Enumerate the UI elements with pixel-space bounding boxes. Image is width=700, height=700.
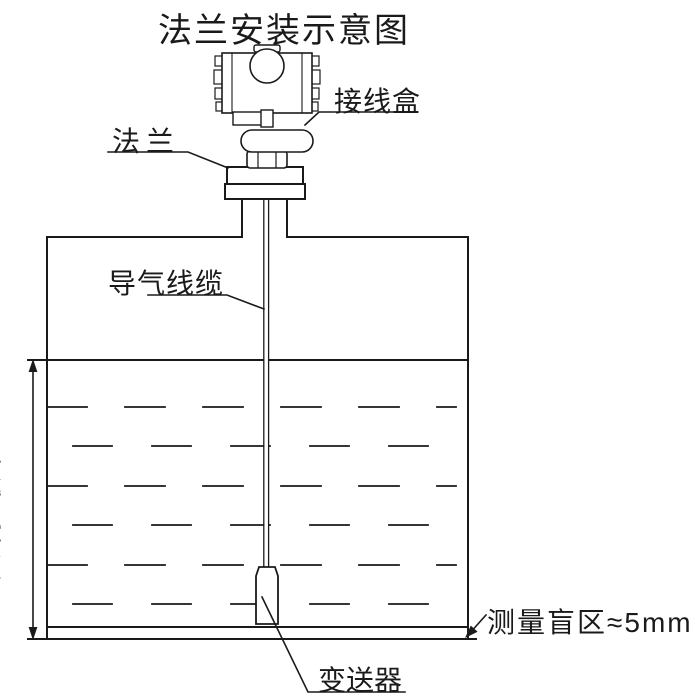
flange-lower-plate xyxy=(225,184,305,199)
flange-installation-diagram: 法兰安装示意图 接线盒 法兰 导气线缆 实际液位 变送器 测量盲区≈5mm xyxy=(0,0,700,700)
hex-nut xyxy=(247,151,287,168)
liquid-dashes xyxy=(47,407,456,604)
connection-capsule xyxy=(241,130,313,152)
air-guide-cable xyxy=(264,184,269,567)
level-dimension-arrow xyxy=(29,359,38,640)
liquid xyxy=(28,360,468,604)
head-vent-fitting xyxy=(261,110,273,127)
transmitter-probe xyxy=(256,567,278,624)
transmitter-head xyxy=(214,45,320,127)
tank-outline xyxy=(28,237,476,639)
label-blind-zone: 测量盲区≈5mm xyxy=(487,601,693,641)
flange-upper-plate xyxy=(227,167,303,184)
label-junction-box: 接线盒 xyxy=(334,80,421,120)
label-flange: 法兰 xyxy=(112,120,180,160)
label-actual-level: 实际液位 xyxy=(0,430,6,582)
label-air-guide-cable: 导气线缆 xyxy=(108,262,224,302)
head-top-plug xyxy=(250,49,284,83)
label-transmitter: 变送器 xyxy=(318,659,402,699)
diagram-title: 法兰安装示意图 xyxy=(158,3,410,52)
head-vent-block xyxy=(233,112,262,125)
process-connection xyxy=(241,130,313,168)
flange-plates xyxy=(225,167,305,199)
